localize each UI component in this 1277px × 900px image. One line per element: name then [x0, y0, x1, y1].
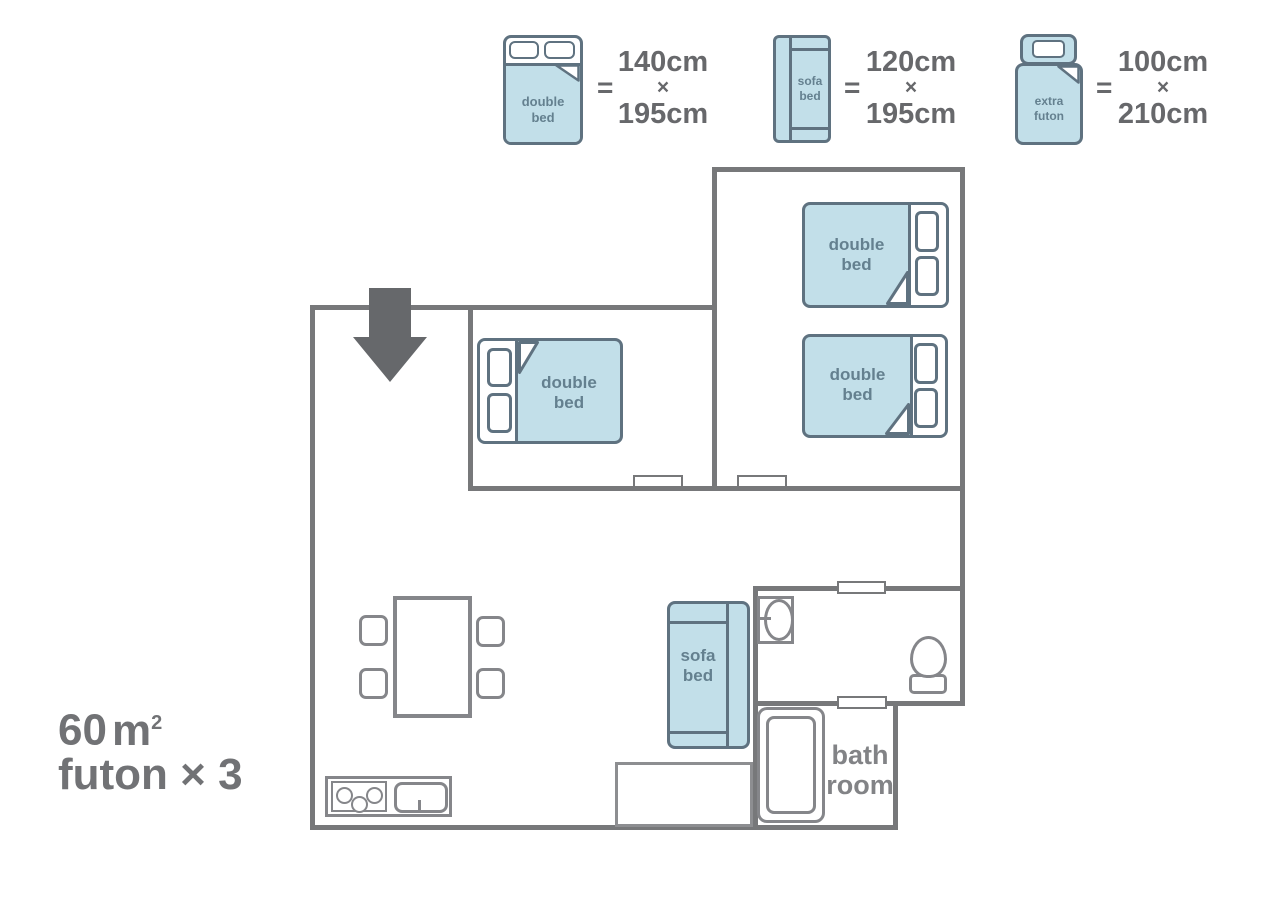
floorplan-page: double bed = 140cm × 195cm sofa bed = 12… [0, 0, 1277, 900]
legend-extra-futon-headboard [1020, 34, 1077, 65]
sofa-bed-label: sofa bed [670, 646, 726, 686]
area-number: 60 [58, 706, 107, 755]
sofa-backrest-line [726, 604, 729, 746]
chair-icon [359, 615, 388, 646]
blanket-fold-icon [518, 341, 539, 374]
door-opening-washroom [837, 581, 886, 594]
legend-sofa-bed-label-line2: bed [799, 89, 820, 103]
sofa-armrest-line [792, 127, 828, 130]
legend-extra-futon-label-line2: futon [1034, 109, 1064, 123]
double-bed-label-line2: bed [841, 255, 871, 274]
double-bed-label: double bed [805, 365, 910, 405]
legend-double-bed-label-line1: double [522, 94, 565, 109]
double-bed-dimensions: 140cm × 195cm [603, 47, 723, 129]
sofa-bed-icon: sofa bed [667, 601, 750, 749]
bathtub-inner [766, 716, 816, 814]
legend-extra-futon-label-line1: extra [1035, 94, 1064, 108]
pillow-icon [915, 211, 939, 252]
area-unit: m [112, 706, 151, 755]
dimension-times: × [851, 77, 971, 99]
bathroom-label-line1: bath [832, 740, 889, 770]
dimension-length: 210cm [1103, 99, 1223, 129]
legend-extra-futon-icon: extra futon [1015, 63, 1083, 145]
legend-sofa-bed-label-line1: sofa [798, 74, 823, 88]
dimension-width: 100cm [1103, 47, 1223, 77]
double-bed-label: double bed [805, 235, 908, 275]
wall-bottom [310, 825, 898, 830]
futon-count-label: futon × 3 [58, 750, 243, 800]
door-opening-bathroom [837, 696, 887, 709]
dining-table [393, 596, 472, 718]
pillow-icon [915, 256, 939, 296]
chair-icon [359, 668, 388, 699]
legend-sofa-bed-icon: sofa bed [773, 35, 831, 143]
wall-bedroom-left [468, 305, 473, 491]
washbasin-bowl-icon [764, 599, 794, 641]
sink-faucet-icon [418, 800, 421, 813]
legend-sofa-bed-label: sofa bed [792, 74, 828, 104]
stove-burner-icon [366, 787, 383, 804]
wall-top-right-room-top [712, 167, 965, 172]
double-bed-label: double bed [518, 373, 620, 413]
area-label: 60m2 [58, 698, 162, 756]
legend-double-bed-label: double bed [506, 94, 580, 126]
double-bed-label-line2: bed [842, 385, 872, 404]
wall-bedrooms-divider [712, 167, 717, 491]
dimension-times: × [1103, 77, 1223, 99]
pillow-icon [914, 388, 938, 428]
legend-double-bed-icon: double bed [503, 35, 583, 145]
blanket-fold-icon [1057, 65, 1080, 84]
dimension-length: 195cm [851, 99, 971, 129]
double-bed-label-line1: double [830, 365, 886, 384]
bathroom-label-line2: room [826, 770, 894, 800]
double-bed-icon: double bed [802, 334, 948, 438]
kitchen-sink-icon [394, 782, 448, 813]
entry-step [615, 762, 753, 827]
double-bed-icon: double bed [802, 202, 949, 308]
sofa-armrest-line [670, 621, 726, 624]
door-opening-bedroom-right [737, 475, 787, 488]
wall-bedrooms-bottom [468, 486, 965, 491]
pillow-icon [487, 348, 512, 387]
sofa-bed-dimensions: 120cm × 195cm [851, 47, 971, 129]
dimension-width: 140cm [603, 47, 723, 77]
blanket-fold-icon [885, 403, 910, 435]
pillow-icon [914, 343, 938, 384]
double-bed-label-line1: double [829, 235, 885, 254]
area-superscript: 2 [151, 712, 162, 734]
pillow-icon [487, 393, 512, 433]
sofa-armrest-line [670, 731, 726, 734]
wall-right [960, 167, 965, 706]
legend-extra-futon-label: extra futon [1018, 94, 1080, 124]
legend-double-bed-label-line2: bed [531, 110, 554, 125]
dimension-times: × [603, 77, 723, 99]
pillow-icon [544, 41, 575, 59]
sofa-armrest-line [792, 48, 828, 51]
bathroom-label: bath room [820, 740, 900, 800]
chair-icon [476, 616, 505, 647]
pillow-icon [509, 41, 539, 59]
sofa-bed-label-line1: sofa [681, 646, 716, 665]
double-bed-label-line1: double [541, 373, 597, 392]
toilet-bowl-icon [910, 636, 947, 678]
extra-futon-dimensions: 100cm × 210cm [1103, 47, 1223, 129]
pillow-icon [1032, 40, 1065, 58]
dimension-width: 120cm [851, 47, 971, 77]
double-bed-icon: double bed [477, 338, 623, 444]
door-opening-bedroom-left [633, 475, 683, 488]
dimension-length: 195cm [603, 99, 723, 129]
stove-burner-icon [351, 796, 368, 813]
wall-left [310, 305, 315, 830]
blanket-fold-icon [886, 271, 909, 305]
chair-icon [476, 668, 505, 699]
washbasin-faucet-icon [759, 617, 771, 620]
double-bed-label-line2: bed [554, 393, 584, 412]
entrance-arrow-icon [350, 286, 430, 386]
sofa-bed-label-line2: bed [683, 666, 713, 685]
blanket-fold-icon [555, 64, 580, 82]
